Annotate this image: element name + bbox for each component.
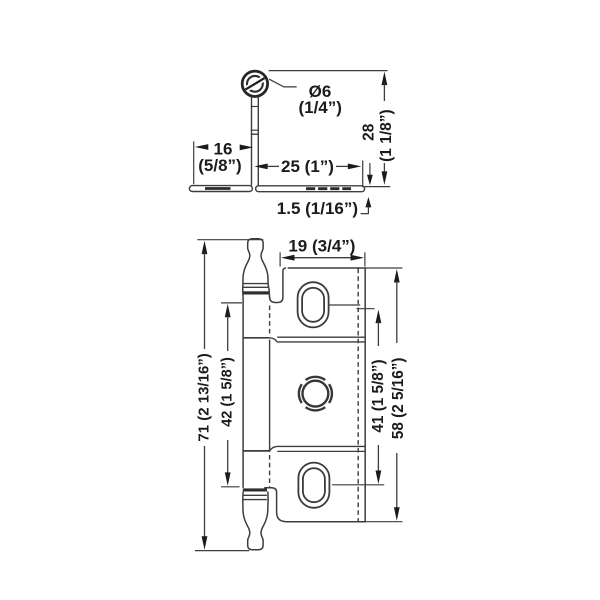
svg-text:(1/4”): (1/4”) xyxy=(298,98,341,117)
svg-text:19 (3/4”): 19 (3/4”) xyxy=(288,236,355,255)
svg-text:(5/8”): (5/8”) xyxy=(198,156,241,175)
svg-text:25 (1”): 25 (1”) xyxy=(281,157,334,176)
svg-text:71 (2 13/16”): 71 (2 13/16”) xyxy=(196,353,213,441)
svg-text:58 (2 5/16”): 58 (2 5/16”) xyxy=(390,357,407,439)
svg-text:41 (1 5/8”): 41 (1 5/8”) xyxy=(370,359,387,432)
svg-text:1.5 (1/16”): 1.5 (1/16”) xyxy=(277,199,358,218)
svg-text:42 (1 5/8”): 42 (1 5/8”) xyxy=(219,357,235,427)
svg-text:(1 1/8”): (1 1/8”) xyxy=(378,109,395,162)
svg-text:28: 28 xyxy=(360,123,377,141)
